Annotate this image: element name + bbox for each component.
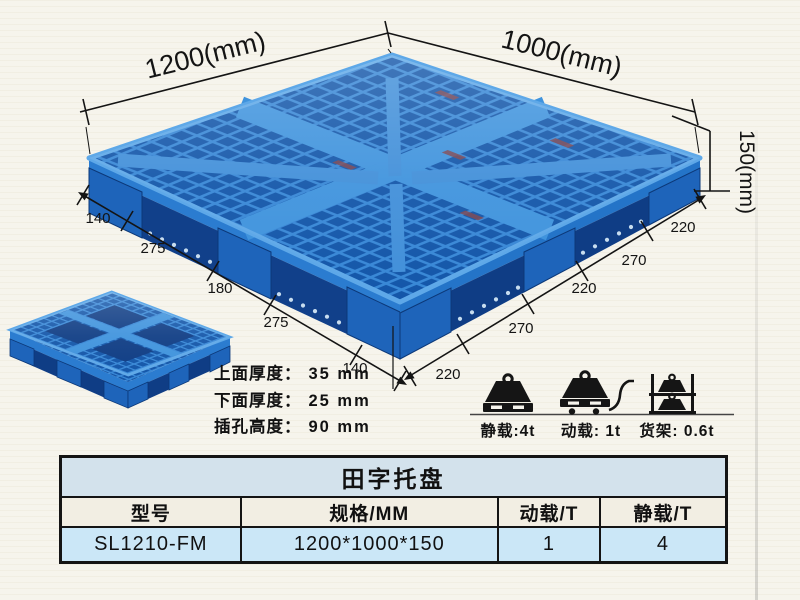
small-pallet-image	[10, 292, 230, 408]
thickness-value: 90 mm	[309, 418, 371, 436]
dim-depth-label: 1000(mm)	[498, 24, 625, 83]
spec-table: 田字托盘 型号 规格/MM 动载/T 静载/T SL1210-FM 1200*1…	[59, 455, 728, 564]
rack-load-caption: 货架: 0.6t	[639, 419, 714, 441]
thickness-note-top: 上面厚度：35 mm	[214, 360, 371, 384]
cell-model: SL1210-FM	[62, 528, 242, 561]
header-cell-spec: 规格/MM	[242, 498, 499, 528]
svg-text:220: 220	[571, 280, 596, 297]
dim-width-label: 1200(mm)	[142, 26, 269, 85]
spec-table-title: 田字托盘	[62, 458, 725, 498]
svg-text:270: 270	[508, 320, 533, 337]
main-pallet-image	[89, 55, 700, 359]
header-cell-model: 型号	[62, 498, 242, 528]
dynamic-load-icon	[560, 372, 634, 415]
rack-load-icon	[649, 374, 696, 414]
spec-table-header-row: 型号 规格/MM 动载/T 静载/T	[62, 498, 725, 528]
load-rating-icons	[470, 372, 734, 415]
static-load-caption: 静载:4t	[481, 419, 536, 441]
thickness-label: 上面厚度：	[214, 365, 302, 383]
product-sheet: 1200(mm) 1000(mm) 150(mm) 140 275 180 27…	[0, 0, 800, 600]
pallet-diagram: 1200(mm) 1000(mm) 150(mm) 140 275 180 27…	[0, 0, 800, 450]
thickness-note-slot: 插孔高度：90 mm	[214, 413, 371, 437]
svg-text:275: 275	[263, 314, 288, 331]
spec-table-data-row: SL1210-FM 1200*1000*150 1 4	[62, 528, 725, 561]
static-load-icon	[483, 375, 533, 412]
svg-text:275: 275	[140, 240, 165, 257]
main-pallet-top-deck	[89, 55, 700, 302]
svg-text:270: 270	[621, 252, 646, 269]
header-cell-static-load: 静载/T	[601, 498, 725, 528]
thickness-value: 35 mm	[309, 365, 371, 383]
svg-text:180: 180	[207, 280, 232, 297]
svg-text:140: 140	[85, 210, 110, 227]
thickness-label: 下面厚度：	[214, 392, 302, 410]
header-cell-dynamic-load: 动载/T	[499, 498, 601, 528]
svg-text:220: 220	[670, 219, 695, 236]
svg-text:220: 220	[435, 366, 460, 383]
cell-static-load: 4	[601, 528, 725, 561]
scan-artifact-line	[755, 130, 758, 600]
dynamic-load-caption: 动载: 1t	[561, 419, 621, 441]
thickness-value: 25 mm	[309, 392, 371, 410]
thickness-label: 插孔高度：	[214, 418, 302, 436]
cell-spec: 1200*1000*150	[242, 528, 499, 561]
thickness-note-bottom: 下面厚度：25 mm	[214, 387, 371, 411]
cell-dynamic-load: 1	[499, 528, 601, 561]
